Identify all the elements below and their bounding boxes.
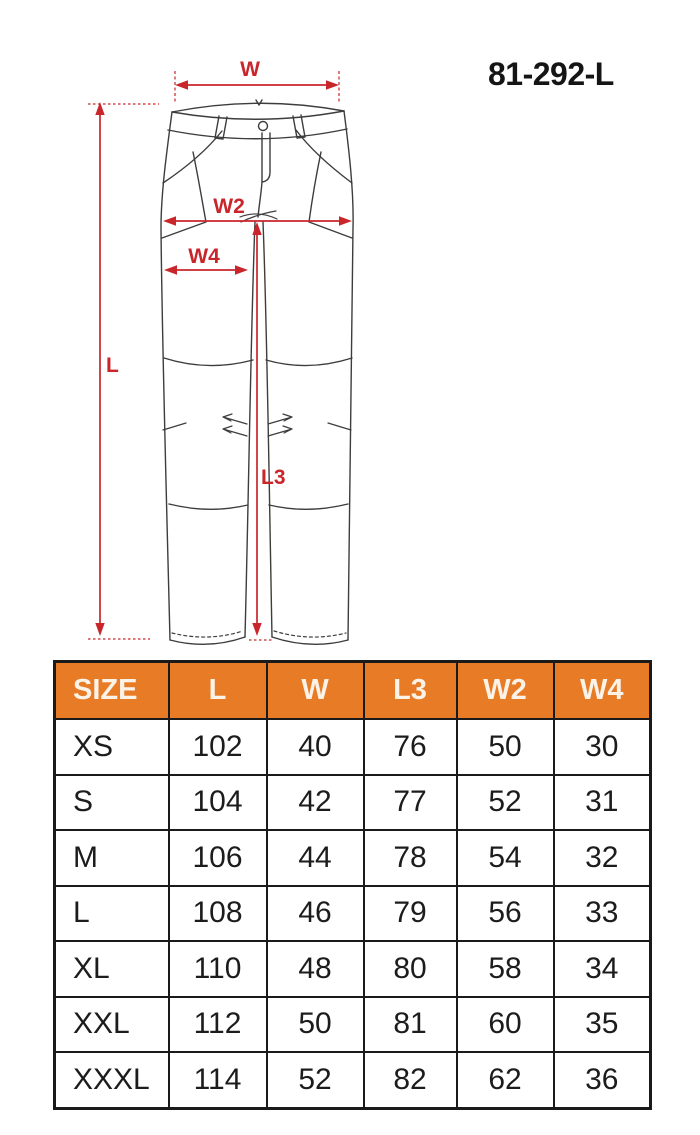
table-row: M 106 44 78 54 32 bbox=[55, 830, 651, 886]
value-cell: 31 bbox=[554, 775, 651, 831]
trousers-size-diagram: W L W2 W4 L3 bbox=[0, 0, 700, 660]
size-cell: M bbox=[55, 830, 169, 886]
col-header-w2: W2 bbox=[457, 662, 554, 720]
thigh-flap-left bbox=[162, 152, 206, 238]
value-cell: 46 bbox=[267, 886, 364, 942]
dim-label-l: L bbox=[106, 354, 119, 377]
waistband-top-front-edge bbox=[172, 111, 344, 119]
value-cell: 108 bbox=[169, 886, 267, 942]
value-cell: 102 bbox=[169, 719, 267, 775]
size-cell: XS bbox=[55, 719, 169, 775]
inner-seam-right bbox=[263, 222, 272, 637]
belt-loop-left bbox=[215, 116, 227, 139]
thigh-seam-right bbox=[266, 358, 352, 366]
value-cell: 30 bbox=[554, 719, 651, 775]
waistband-bottom-edge bbox=[168, 129, 347, 139]
dim-label-w2: W2 bbox=[213, 195, 245, 218]
value-cell: 44 bbox=[267, 830, 364, 886]
col-header-w: W bbox=[267, 662, 364, 720]
pocket-slash-left bbox=[163, 131, 222, 183]
dim-label-l3: L3 bbox=[261, 466, 286, 489]
dim-label-w4: W4 bbox=[188, 245, 220, 268]
size-cell: XXXL bbox=[55, 1052, 169, 1108]
table-row: XXL 112 50 81 60 35 bbox=[55, 997, 651, 1053]
dimension-labels: W L W2 W4 L3 bbox=[106, 58, 286, 489]
front-rise-seam bbox=[258, 182, 262, 217]
fly-placket bbox=[262, 133, 270, 182]
value-cell: 80 bbox=[364, 941, 457, 997]
value-cell: 50 bbox=[267, 997, 364, 1053]
knee-seam-left bbox=[169, 504, 248, 509]
value-cell: 112 bbox=[169, 997, 267, 1053]
hem-stitch-right bbox=[274, 631, 346, 637]
dimension-l bbox=[88, 102, 159, 639]
value-cell: 81 bbox=[364, 997, 457, 1053]
dim-label-w: W bbox=[240, 58, 260, 81]
table-row: S 104 42 77 52 31 bbox=[55, 775, 651, 831]
dimension-lines bbox=[88, 71, 352, 640]
value-cell: 32 bbox=[554, 830, 651, 886]
value-cell: 82 bbox=[364, 1052, 457, 1108]
value-cell: 58 bbox=[457, 941, 554, 997]
value-cell: 76 bbox=[364, 719, 457, 775]
pocket-slash-right bbox=[296, 130, 352, 183]
thigh-seam-left bbox=[164, 358, 253, 366]
size-table: SIZE L W L3 W2 W4 XS 102 40 76 50 30 S 1… bbox=[53, 660, 652, 1110]
value-cell: 50 bbox=[457, 719, 554, 775]
value-cell: 40 bbox=[267, 719, 364, 775]
table-row: XL 110 48 80 58 34 bbox=[55, 941, 651, 997]
col-header-size: SIZE bbox=[55, 662, 169, 720]
value-cell: 34 bbox=[554, 941, 651, 997]
value-cell: 77 bbox=[364, 775, 457, 831]
value-cell: 52 bbox=[457, 775, 554, 831]
value-cell: 54 bbox=[457, 830, 554, 886]
outer-seam-right bbox=[344, 111, 353, 640]
waistband-back-notch bbox=[256, 100, 262, 105]
table-row: XS 102 40 76 50 30 bbox=[55, 719, 651, 775]
value-cell: 48 bbox=[267, 941, 364, 997]
size-cell: L bbox=[55, 886, 169, 942]
value-cell: 78 bbox=[364, 830, 457, 886]
value-cell: 42 bbox=[267, 775, 364, 831]
col-header-l: L bbox=[169, 662, 267, 720]
inner-seam-left bbox=[245, 222, 255, 637]
hem-left bbox=[170, 637, 245, 644]
table-row: L 108 46 79 56 33 bbox=[55, 886, 651, 942]
hem-stitch-left bbox=[172, 631, 243, 637]
table-row: XXXL 114 52 82 62 36 bbox=[55, 1052, 651, 1108]
value-cell: 56 bbox=[457, 886, 554, 942]
col-header-l3: L3 bbox=[364, 662, 457, 720]
value-cell: 36 bbox=[554, 1052, 651, 1108]
value-cell: 60 bbox=[457, 997, 554, 1053]
value-cell: 106 bbox=[169, 830, 267, 886]
value-cell: 79 bbox=[364, 886, 457, 942]
table-header-row: SIZE L W L3 W2 W4 bbox=[55, 662, 651, 720]
waist-button bbox=[259, 122, 268, 131]
size-cell: XXL bbox=[55, 997, 169, 1053]
outer-seam-left bbox=[161, 112, 172, 640]
value-cell: 33 bbox=[554, 886, 651, 942]
size-cell: XL bbox=[55, 941, 169, 997]
value-cell: 114 bbox=[169, 1052, 267, 1108]
size-cell: S bbox=[55, 775, 169, 831]
hem-right bbox=[272, 637, 348, 644]
value-cell: 52 bbox=[267, 1052, 364, 1108]
col-header-w4: W4 bbox=[554, 662, 651, 720]
knee-seam-right bbox=[269, 504, 348, 509]
value-cell: 35 bbox=[554, 997, 651, 1053]
value-cell: 104 bbox=[169, 775, 267, 831]
value-cell: 62 bbox=[457, 1052, 554, 1108]
value-cell: 110 bbox=[169, 941, 267, 997]
